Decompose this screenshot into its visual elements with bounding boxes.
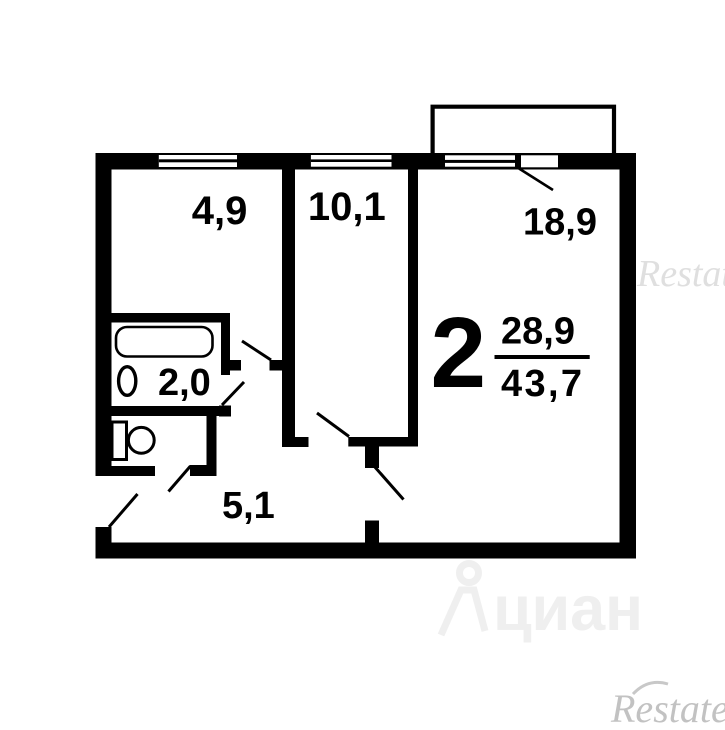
svg-text:циан: циан bbox=[493, 574, 643, 644]
svg-text:5,1: 5,1 bbox=[222, 485, 275, 527]
svg-text:Restate: Restate bbox=[610, 686, 725, 725]
svg-text:43,7: 43,7 bbox=[501, 363, 582, 405]
svg-text:4,9: 4,9 bbox=[192, 189, 248, 233]
svg-text:10,1: 10,1 bbox=[308, 185, 386, 229]
svg-text:2,0: 2,0 bbox=[158, 362, 211, 404]
svg-text:18,9: 18,9 bbox=[523, 202, 597, 244]
svg-text:Restate: Restate bbox=[636, 253, 725, 295]
svg-text:2: 2 bbox=[431, 297, 487, 409]
svg-text:28,9: 28,9 bbox=[501, 311, 575, 353]
